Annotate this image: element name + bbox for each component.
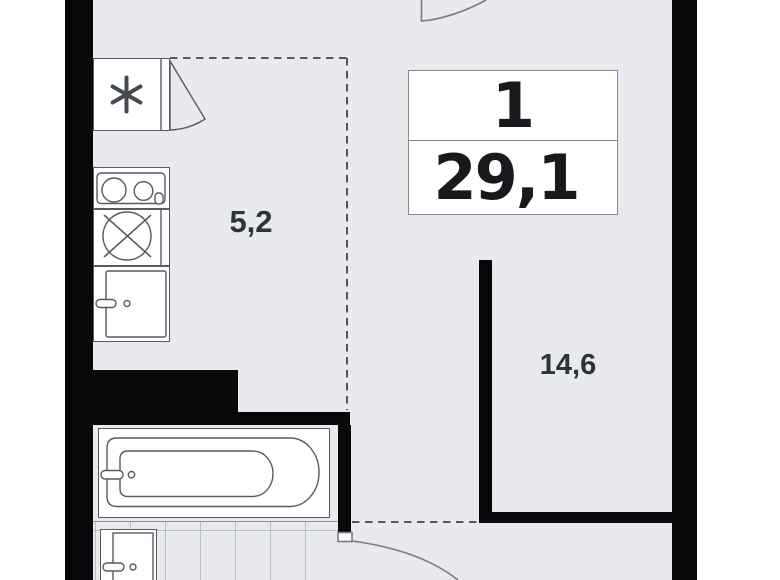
- unit-rooms-count: 1: [409, 71, 617, 141]
- washbasin: [100, 529, 157, 580]
- wall-living-partition-vertical: [479, 260, 492, 523]
- living-area-label: 14,6: [518, 350, 618, 381]
- wall-right: [672, 0, 697, 580]
- wall-left: [65, 0, 93, 580]
- bathtub: [98, 428, 330, 518]
- wall-bathroom-block: [65, 370, 238, 425]
- floor-plan: 5,2 14,6 1 29,1: [0, 0, 780, 580]
- stove: [93, 167, 170, 209]
- wall-living-partition-horizontal: [479, 512, 672, 523]
- wall-bathroom-right: [338, 425, 351, 533]
- fridge: [93, 58, 170, 131]
- unit-total-area: 29,1: [409, 141, 617, 214]
- wall-bathroom-top: [238, 412, 350, 425]
- kitchen-sink-cabinet: [93, 266, 170, 342]
- sink-unit: [93, 209, 170, 266]
- kitchen-area-label: 5,2: [201, 205, 301, 239]
- unit-info-box: 1 29,1: [408, 70, 618, 215]
